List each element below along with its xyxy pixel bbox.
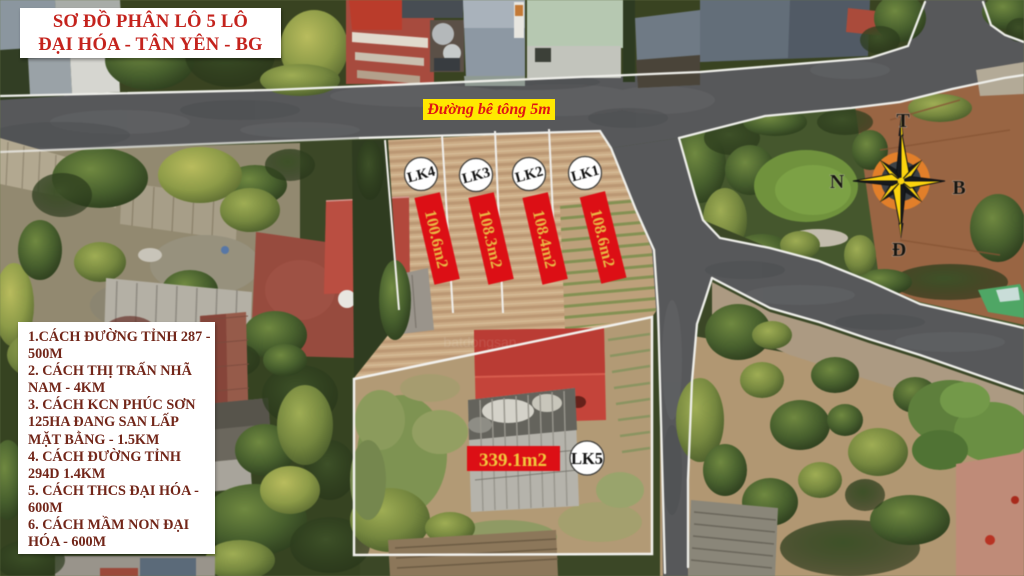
- svg-text:T: T: [896, 110, 910, 132]
- svg-text:N: N: [830, 171, 845, 193]
- svg-text:LK5: LK5: [571, 449, 603, 468]
- svg-text:B: B: [952, 177, 965, 199]
- svg-text:Đ: Đ: [892, 239, 906, 261]
- svg-text:batdongsan: batdongsan: [443, 334, 516, 350]
- svg-text:339.1m2: 339.1m2: [479, 450, 547, 471]
